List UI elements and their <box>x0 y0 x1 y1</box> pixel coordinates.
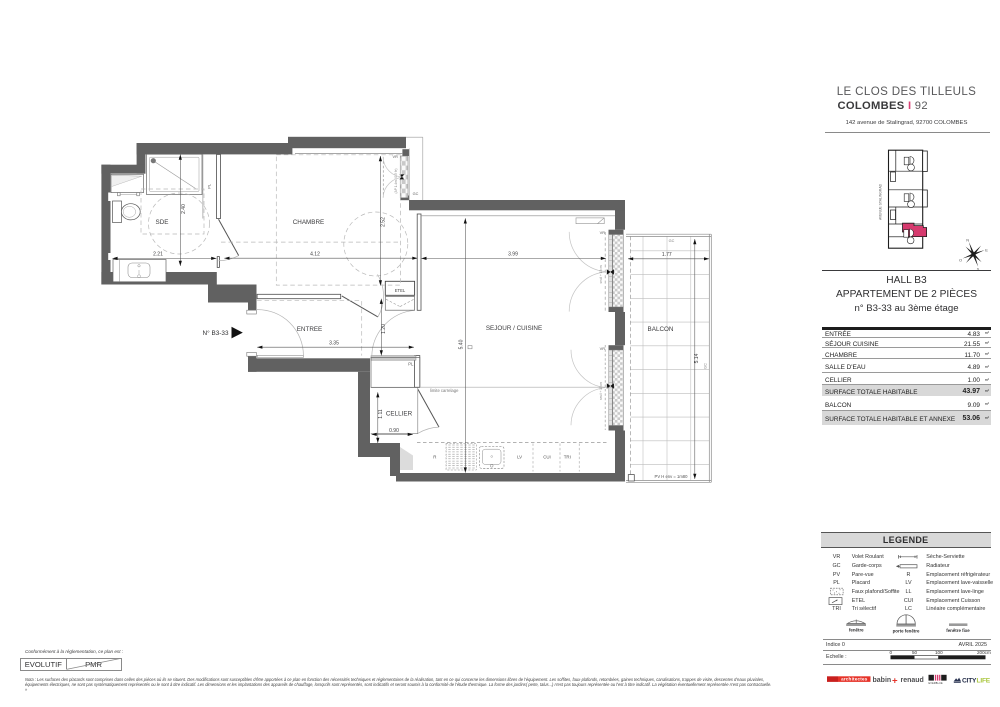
svg-text:CELLIER: CELLIER <box>386 410 413 417</box>
svg-text:fenêtre fixe: fenêtre fixe <box>946 628 970 633</box>
svg-text:LIFE: LIFE <box>977 677 991 684</box>
svg-text:PL: PL <box>408 362 414 367</box>
svg-text:GC: GC <box>413 192 419 196</box>
svg-text:N: N <box>966 238 969 243</box>
svg-text:PL: PL <box>207 183 212 189</box>
svg-text:GC: GC <box>669 239 675 243</box>
svg-text:AVENUE STALINGRAD: AVENUE STALINGRAD <box>879 183 883 220</box>
svg-text:babin: babin <box>873 677 892 684</box>
svg-text:O: O <box>959 258 962 263</box>
svg-text:200cm: 200cm <box>977 650 991 655</box>
svg-text:5.40: 5.40 <box>459 339 465 349</box>
svg-text:0: 0 <box>890 650 893 655</box>
svg-text:ENTREE: ENTREE <box>297 326 323 333</box>
svg-text:architectes: architectes <box>841 677 868 682</box>
svg-text:2.21: 2.21 <box>153 252 163 258</box>
svg-text:porte fenêtre: porte fenêtre <box>893 628 920 633</box>
svg-text:PV H env = 1m80: PV H env = 1m80 <box>655 474 689 479</box>
svg-text:EVERBLUE: EVERBLUE <box>929 682 944 685</box>
svg-text:CHAMBRE: CHAMBRE <box>293 219 325 226</box>
svg-text:seuil + 15cm: seuil + 15cm <box>599 382 603 400</box>
svg-text:R: R <box>433 455 436 460</box>
svg-text:3.99: 3.99 <box>508 252 518 258</box>
svg-text:SEJOUR / CUISINE: SEJOUR / CUISINE <box>486 325 542 332</box>
svg-text:3.35: 3.35 <box>329 341 339 347</box>
svg-text:(AP 1.4m / 0.5 fe): (AP 1.4m / 0.5 fe) <box>394 169 398 194</box>
svg-text:renaud: renaud <box>901 677 924 684</box>
svg-text:VR: VR <box>393 155 399 159</box>
svg-text:VR: VR <box>600 347 606 351</box>
svg-text:4.12: 4.12 <box>310 251 320 257</box>
svg-text:seuil + 15cm: seuil + 15cm <box>599 265 603 283</box>
svg-text:BALCON: BALCON <box>648 326 674 333</box>
svg-text:1.11: 1.11 <box>378 409 384 419</box>
svg-text:VR: VR <box>600 231 606 235</box>
svg-text:N° B3-33: N° B3-33 <box>203 329 229 337</box>
svg-text:2.52: 2.52 <box>380 217 386 227</box>
svg-text:TRI: TRI <box>564 455 571 460</box>
svg-text:5.14: 5.14 <box>694 353 700 363</box>
svg-text:+: + <box>892 675 898 686</box>
svg-text:GC: GC <box>704 363 708 369</box>
svg-text:0.90: 0.90 <box>389 428 399 434</box>
svg-text:1.20: 1.20 <box>381 324 387 334</box>
svg-text:CITY: CITY <box>962 677 977 684</box>
svg-text:100: 100 <box>935 650 943 655</box>
svg-text:CUI: CUI <box>543 455 551 460</box>
svg-text:SDE: SDE <box>156 219 169 226</box>
svg-text:50: 50 <box>912 650 918 655</box>
svg-text:1.77: 1.77 <box>662 252 672 258</box>
svg-text:fenêtre: fenêtre <box>849 628 864 633</box>
svg-text:limite carrelage: limite carrelage <box>430 388 459 393</box>
svg-text:2.40: 2.40 <box>181 204 187 214</box>
svg-text:E: E <box>985 248 988 253</box>
svg-text:LV: LV <box>517 455 522 460</box>
svg-text:ETEL: ETEL <box>395 288 406 293</box>
